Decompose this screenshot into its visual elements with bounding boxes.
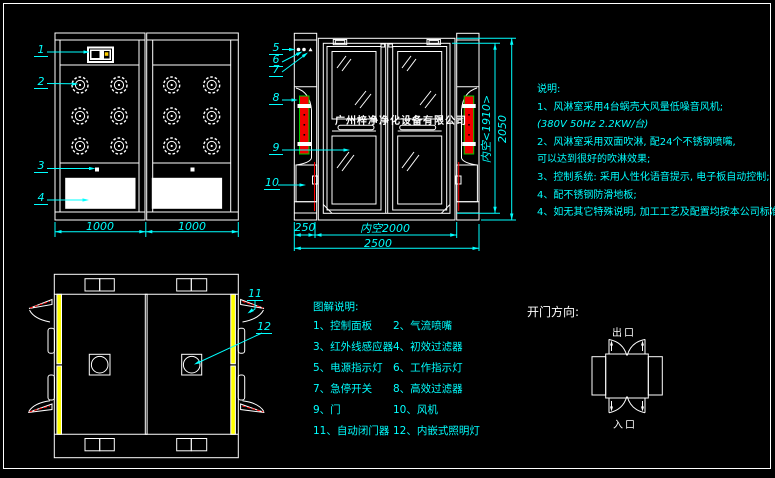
callout-9: 9 [269,142,283,155]
infrared-sensor [95,168,99,172]
note-line: 3、控制系统: 采用人性化语音提示, 电子板自动控制; [537,169,775,187]
legend-item: 5、电源指示灯 [313,360,393,381]
dim-side-bay-left: 1000 [80,220,120,233]
legend-item: 11、自动闭门器 [313,423,393,444]
dim-front-total-width: 2500 [355,237,401,250]
cad-drawing-sheet: 1 2 3 4 5 6 7 8 9 10 11 12 1000 1000 250… [0,0,775,478]
prefilter-right [152,178,221,208]
legend-title: 图解说明: [313,299,480,318]
legend-item: 10、风机 [393,402,438,423]
infrared-sensor [191,168,195,172]
legend-row: 9、门 10、风机 [313,402,480,423]
fan-box-right [457,165,478,202]
legend-item: 7、急停开关 [313,381,393,402]
door-glass [398,52,442,120]
legend-row: 7、急停开关 8、高效过滤器 [313,381,480,402]
door-right [393,47,447,211]
dim-front-inner-height: 内空<1910> [478,89,494,169]
callout-11: 11 [247,288,263,301]
indicator-lights [297,48,313,52]
legend-block: 图解说明: 1、控制面板 2、气流喷嘴 3、红外线感应器 4、初效过滤器 5、电… [313,299,480,444]
door-direction-diagram [592,339,662,412]
callout-2: 2 [34,76,48,89]
plan-view-drawing [28,274,264,457]
legend-row: 1、控制面板 2、气流喷嘴 [313,318,480,339]
door-left [327,47,381,211]
hepa-strip-left [298,96,312,154]
note-line: 1、风淋室采用4台蜗壳大风量低噪音风机; [537,99,775,117]
door-direction-entrance-label: 入口 [613,416,637,431]
air-nozzles-left [72,77,127,154]
legend-item: 2、气流喷嘴 [393,318,452,339]
door-direction-exit-label: 出口 [612,324,636,339]
notes-title: 说明: [537,81,775,99]
door-direction-title: 开门方向: [527,303,579,320]
prefilter-left [66,178,135,208]
door-glass [332,52,376,120]
plan-view-annotations [194,301,262,365]
legend-item: 3、红外线感应器 [313,339,393,360]
dim-front-side-box: 250 [293,221,317,234]
dim-side-bay-right: 1000 [172,220,212,233]
side-view-drawing [55,33,238,220]
legend-item: 1、控制面板 [313,318,393,339]
legend-item: 12、内嵌式照明灯 [393,423,480,444]
legend-row: 11、自动闭门器 12、内嵌式照明灯 [313,423,480,444]
callout-8: 8 [269,92,283,105]
lamp-strips [57,294,236,434]
callout-10: 10 [264,177,280,190]
callout-7: 7 [269,64,283,77]
note-line: 2、风淋室采用双面吹淋, 配24个不锈钢喷嘴, [537,134,775,152]
legend-item: 8、高效过滤器 [393,381,463,402]
control-panel [88,47,114,63]
note-line: 可以达到很好的吹淋效果; [537,151,775,169]
dim-front-inner-width: 内空2000 [350,220,420,236]
legend-item: 6、工作指示灯 [393,360,463,381]
dim-front-total-height: 2050 [496,107,509,151]
door-swings [28,300,264,413]
note-line: 4、如无其它特殊说明, 加工工艺及配置均按本公司标准制作. [537,204,775,222]
legend-item: 9、门 [313,402,393,423]
callout-12: 12 [256,321,272,334]
legend-item: 4、初效过滤器 [393,339,463,360]
note-line: 4、配不锈钢防滑地板; [537,187,775,205]
callout-4: 4 [34,192,48,205]
callout-1: 1 [34,44,48,57]
legend-row: 3、红外线感应器 4、初效过滤器 [313,339,480,360]
notes-block: 说明: 1、风淋室采用4台蜗壳大风量低噪音风机; (380V 50Hz 2.2K… [537,81,775,222]
legend-row: 5、电源指示灯 6、工作指示灯 [313,360,480,381]
callout-3: 3 [34,160,48,173]
air-nozzles-right [164,77,220,154]
fan-box-left [296,165,317,202]
company-watermark: 广州梓净净化设备有限公司 [335,112,467,127]
note-line: (380V 50Hz 2.2KW/台) [537,116,775,134]
